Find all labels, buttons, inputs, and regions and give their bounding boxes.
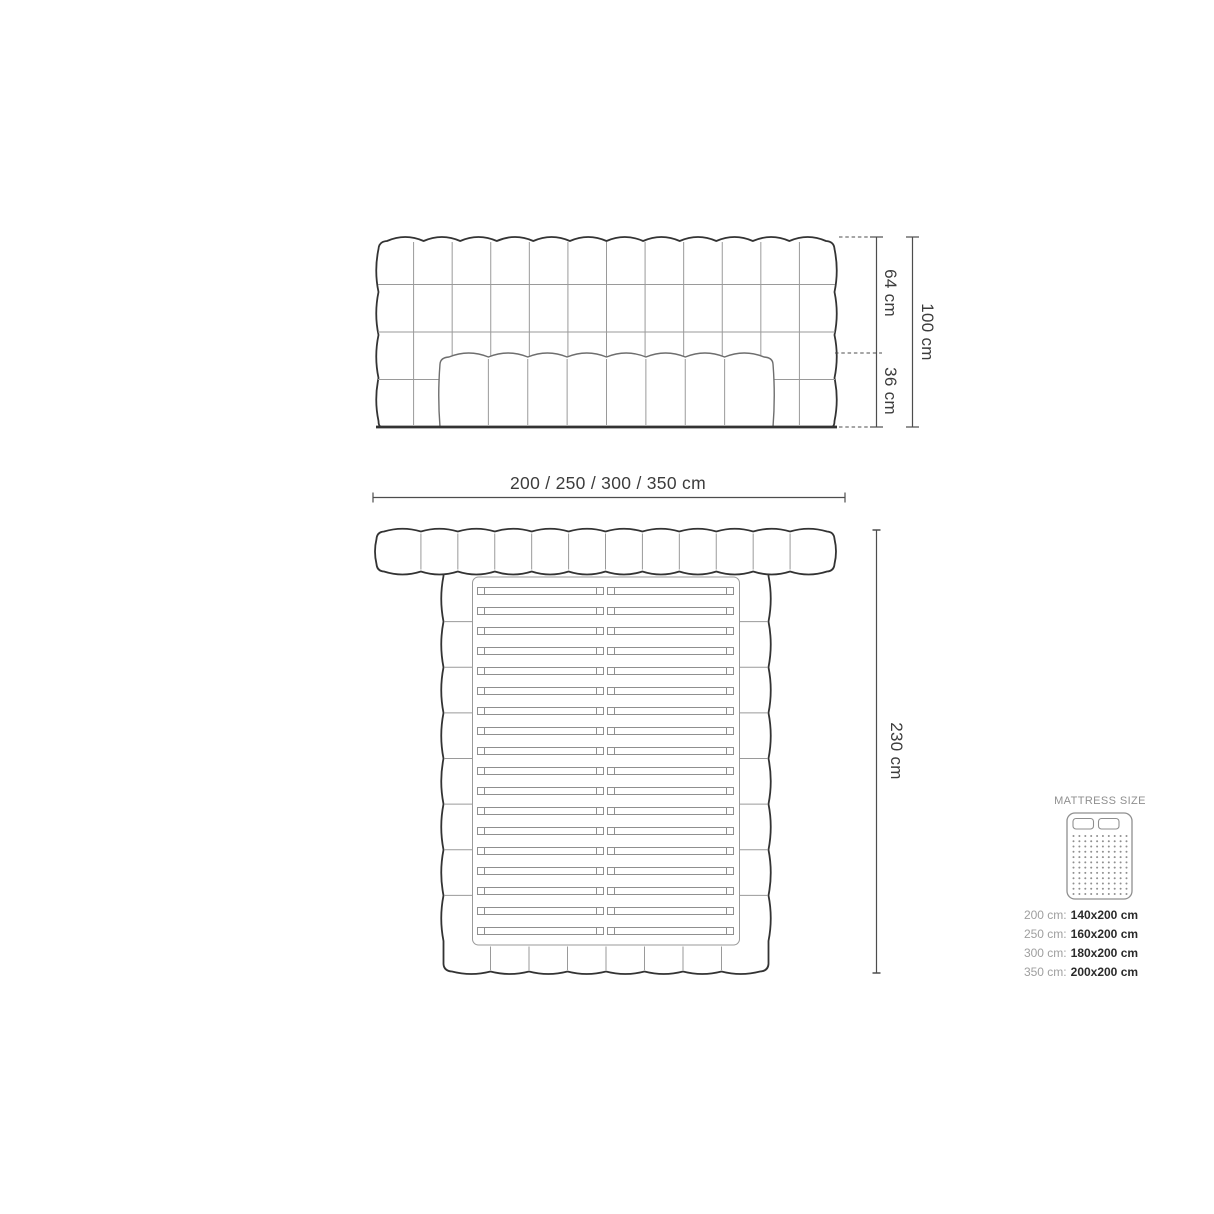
mattress-size-row: 200 cm:140x200 cm [1001,906,1161,925]
bed-width-label: 200 cm: [1024,908,1067,922]
mattress-size-legend: 200 cm:140x200 cm250 cm:160x200 cm300 cm… [1001,906,1161,982]
mattress-size-value: 160x200 cm [1071,927,1138,941]
dim-label-100cm: 100 cm [918,303,937,361]
technical-drawing-page: 64 cm 36 cm 100 cm 200 / 250 / 300 / 350… [0,0,1214,1214]
bed-width-label: 300 cm: [1024,946,1067,960]
mattress-size-row: 350 cm:200x200 cm [1001,963,1161,982]
dim-label-64cm: 64 cm [881,269,900,317]
dim-label-230cm: 230 cm [887,722,906,780]
mattress-size-row: 250 cm:160x200 cm [1001,925,1161,944]
mattress-icon [1067,813,1132,899]
mattress-size-value: 200x200 cm [1071,965,1138,979]
pillow-left-icon [1073,819,1094,830]
dim-label-width-options: 200 / 250 / 300 / 350 cm [510,473,706,493]
plan-view-bed-frame [375,529,836,974]
bed-dimensions-diagram: 64 cm 36 cm 100 cm 200 / 250 / 300 / 350… [0,0,1214,1214]
bed-width-label: 250 cm: [1024,927,1067,941]
bed-width-label: 350 cm: [1024,965,1067,979]
mattress-size-legend-title: MATTRESS SIZE [1020,795,1180,807]
mattress-size-value: 180x200 cm [1071,946,1138,960]
dim-label-36cm: 36 cm [881,367,900,415]
mattress-size-value: 140x200 cm [1071,908,1138,922]
mattress-size-row: 300 cm:180x200 cm [1001,944,1161,963]
front-view-headboard [376,237,837,427]
pillow-right-icon [1099,819,1120,830]
